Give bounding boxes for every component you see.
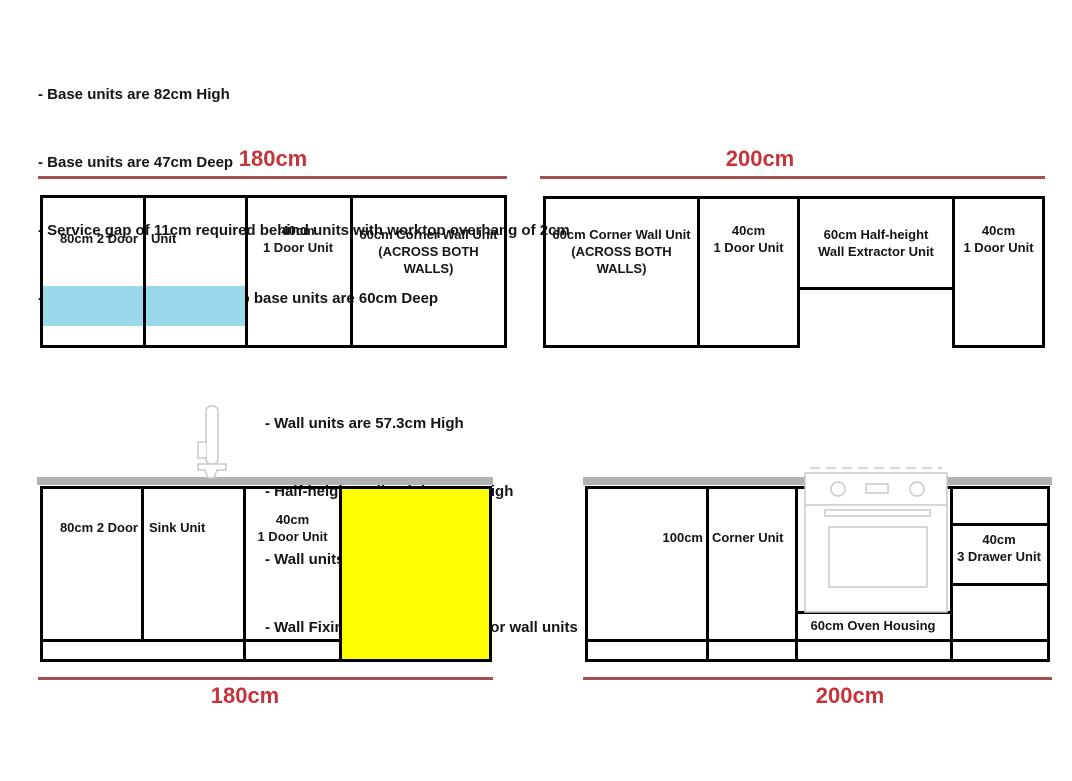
- unit-divider-line: [143, 195, 146, 348]
- unit-label-corner-wall: 60cm Corner Wall Unit (ACROSS BOTH WALLS…: [546, 226, 697, 277]
- label-line: (ACROSS BOTH: [546, 243, 697, 260]
- label-line: 60cm Corner Wall Unit: [353, 226, 504, 243]
- cabinet-border-bottom: [585, 659, 1050, 662]
- note-line: - Base units are 82cm High: [38, 84, 570, 107]
- dimension-rule: [540, 176, 1045, 179]
- cabinet-border-bottom: [40, 659, 342, 662]
- base-run-200-dimension: 200cm: [750, 683, 950, 709]
- label-line: 3 Drawer Unit: [953, 548, 1045, 565]
- cabinet-border-top: [40, 195, 507, 198]
- label-line: 40cm: [955, 222, 1042, 239]
- unit-label-corner-unit: Corner Unit: [712, 529, 812, 546]
- worktop-strip: [37, 477, 493, 485]
- label-line: WALLS): [353, 260, 504, 277]
- base-run-180-dimension: 180cm: [145, 683, 345, 709]
- label-line: 40cm: [248, 222, 348, 239]
- label-line: 60cm Half-height: [800, 226, 952, 243]
- half-height-unit-bottom-line: [797, 287, 955, 290]
- cabinet-border-left: [40, 486, 43, 662]
- dimension-rule: [38, 176, 507, 179]
- unit-divider-line: [952, 196, 955, 348]
- unit-label-sink: Sink Unit: [149, 519, 239, 536]
- label-line: 60cm Corner Wall Unit: [546, 226, 697, 243]
- cabinet-border-bottom-left-segment: [543, 345, 800, 348]
- cabinet-border-right: [1042, 196, 1045, 348]
- label-line: 1 Door Unit: [700, 239, 797, 256]
- unit-label-40cm-1-door: 40cm 1 Door Unit: [700, 222, 797, 256]
- unit-divider-line: [795, 486, 798, 662]
- label-line: 1 Door Unit: [955, 239, 1042, 256]
- unit-label-40cm-3-drawer: 40cm 3 Drawer Unit: [953, 531, 1045, 565]
- faucet-icon: [186, 400, 230, 480]
- kitchen-layout-diagram: - Base units are 82cm High - Base units …: [0, 0, 1072, 781]
- cabinet-border-left: [40, 195, 43, 348]
- drawer-divider-line: [950, 523, 1050, 526]
- unit-label-80cm-2-door: 80cm 2 Door: [45, 230, 138, 247]
- label-line: (ACROSS BOTH: [353, 243, 504, 260]
- unit-label-40cm-1-door: 40cm 1 Door Unit: [955, 222, 1042, 256]
- unit-divider-line: [706, 486, 709, 662]
- unit-divider-line: [245, 195, 248, 348]
- wall-run-180-dimension: 180cm: [173, 146, 373, 172]
- note-line: - Wall units are 57.3cm High: [265, 413, 578, 436]
- drawer-divider-line: [950, 583, 1050, 586]
- unit-label-40cm-1-door: 40cm 1 Door Unit: [246, 511, 339, 545]
- unit-label-40cm-1-door: 40cm 1 Door Unit: [248, 222, 348, 256]
- oven-icon: [802, 464, 950, 613]
- cabinet-border-left: [585, 486, 588, 662]
- plinth-line: [40, 639, 342, 642]
- label-line: 40cm: [246, 511, 339, 528]
- cabinet-border-right: [1047, 486, 1050, 662]
- unit-divider-line: [797, 196, 800, 348]
- unit-divider-line: [697, 196, 700, 348]
- cabinet-border-top: [40, 486, 342, 489]
- unit-label-unit: Unit: [151, 230, 241, 247]
- label-line: 40cm: [953, 531, 1045, 548]
- label-line: 1 Door Unit: [248, 239, 348, 256]
- label-line: WALLS): [546, 260, 697, 277]
- label-line: Wall Extractor Unit: [800, 243, 952, 260]
- label-line: 1 Door Unit: [246, 528, 339, 545]
- cabinet-border-bottom-right-segment: [952, 345, 1045, 348]
- cabinet-border-top: [543, 196, 1045, 199]
- unit-label-80cm-2-door: 80cm 2 Door: [45, 519, 138, 536]
- cabinet-border-right: [504, 195, 507, 348]
- dimension-rule: [583, 677, 1052, 680]
- unit-label-100cm: 100cm: [600, 529, 703, 546]
- cabinet-border-bottom: [40, 345, 507, 348]
- plinth-line: [585, 639, 1050, 642]
- label-line: 40cm: [700, 222, 797, 239]
- unit-label-extractor: 60cm Half-height Wall Extractor Unit: [800, 226, 952, 260]
- wall-run-200-dimension: 200cm: [660, 146, 860, 172]
- unit-label-oven-housing: 60cm Oven Housing: [798, 617, 948, 634]
- unit-divider-line: [141, 486, 144, 641]
- unit-divider-line: [950, 486, 953, 662]
- unit-label-corner-wall: 60cm Corner Wall Unit (ACROSS BOTH WALLS…: [353, 226, 504, 277]
- dimension-rule: [38, 677, 493, 680]
- highlight-corner-unit-yellow: [339, 486, 492, 662]
